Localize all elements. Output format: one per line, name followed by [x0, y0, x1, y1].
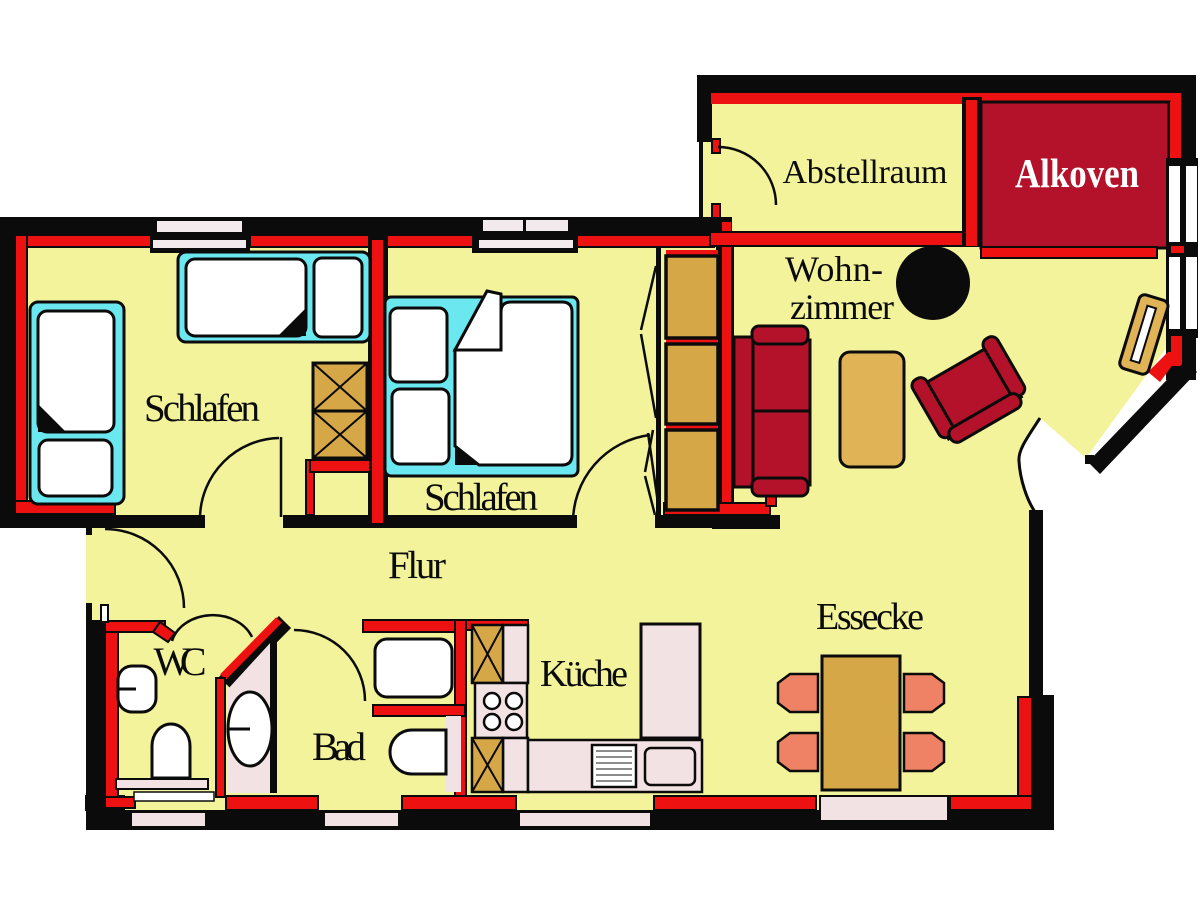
svg-text:Küche: Küche: [540, 653, 628, 695]
svg-text:Bad: Bad: [312, 724, 366, 769]
svg-text:Alkoven: Alkoven: [1015, 150, 1139, 196]
svg-text:zimmer: zimmer: [790, 287, 894, 327]
svg-text:Schlafen: Schlafen: [424, 476, 538, 519]
svg-text:Abstellraum: Abstellraum: [783, 154, 948, 191]
svg-text:Flur: Flur: [388, 544, 446, 587]
svg-text:WC: WC: [154, 639, 207, 684]
svg-text:Schlafen: Schlafen: [144, 387, 260, 430]
svg-text:Essecke: Essecke: [816, 596, 924, 638]
svg-text:Wohn-: Wohn-: [785, 249, 883, 289]
